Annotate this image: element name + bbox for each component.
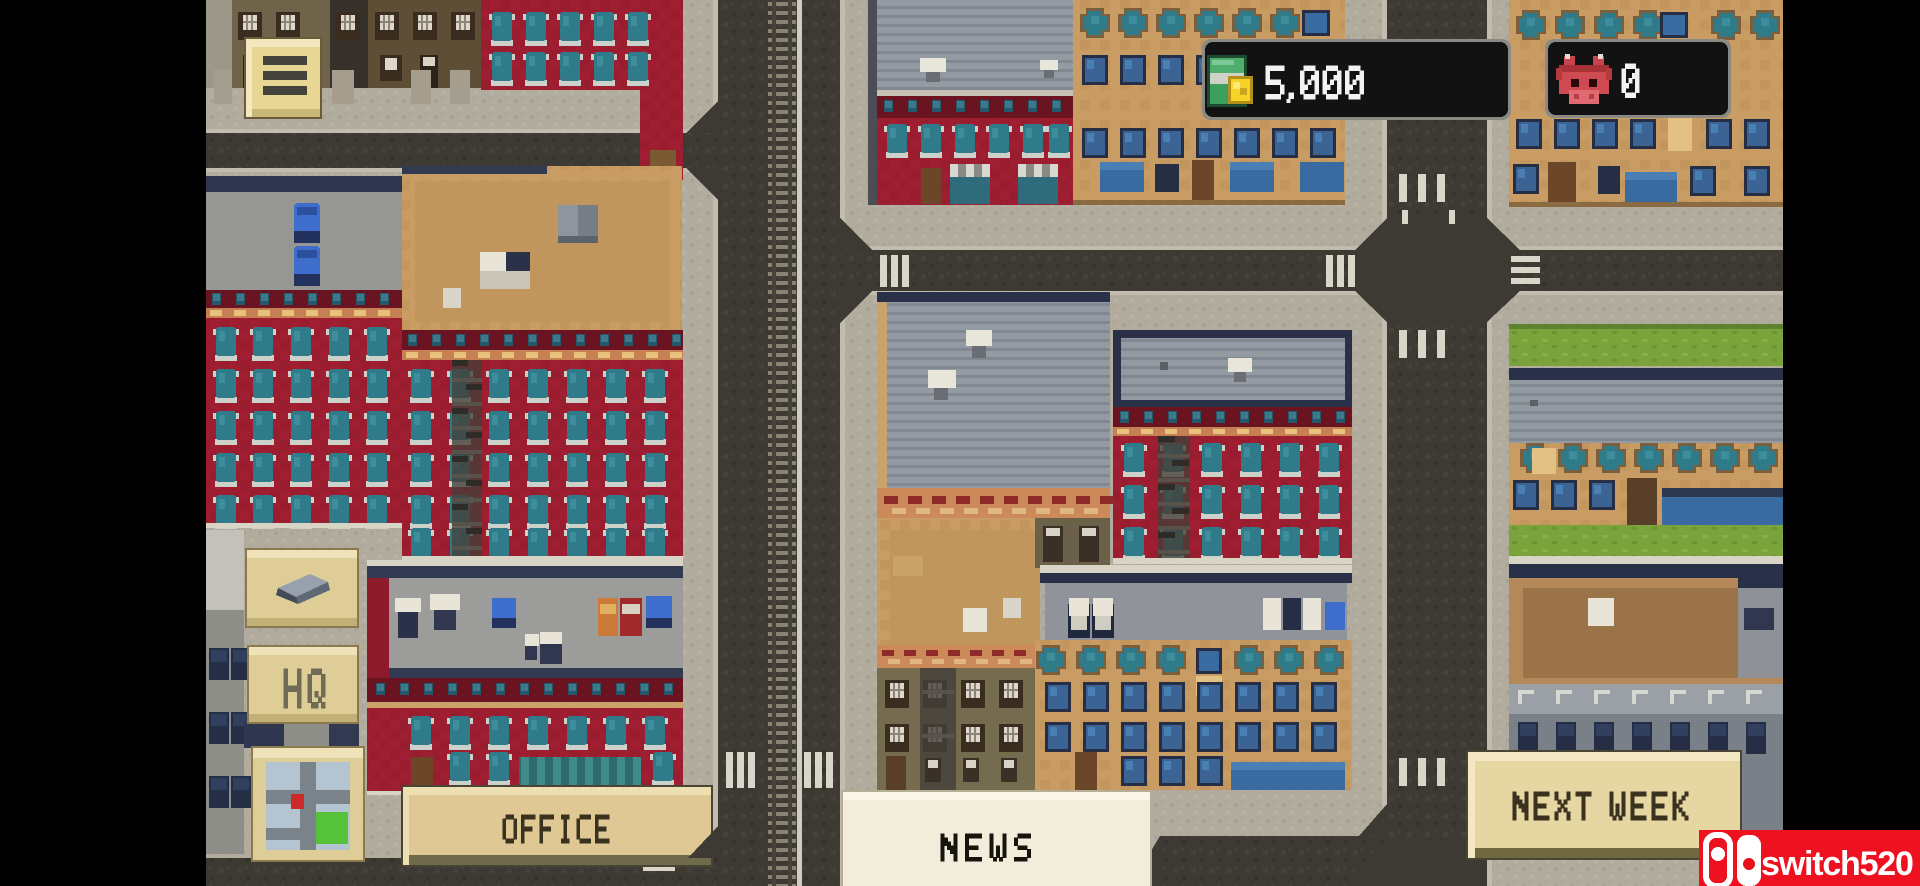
svg-text:switch520: switch520 [1761, 845, 1913, 883]
